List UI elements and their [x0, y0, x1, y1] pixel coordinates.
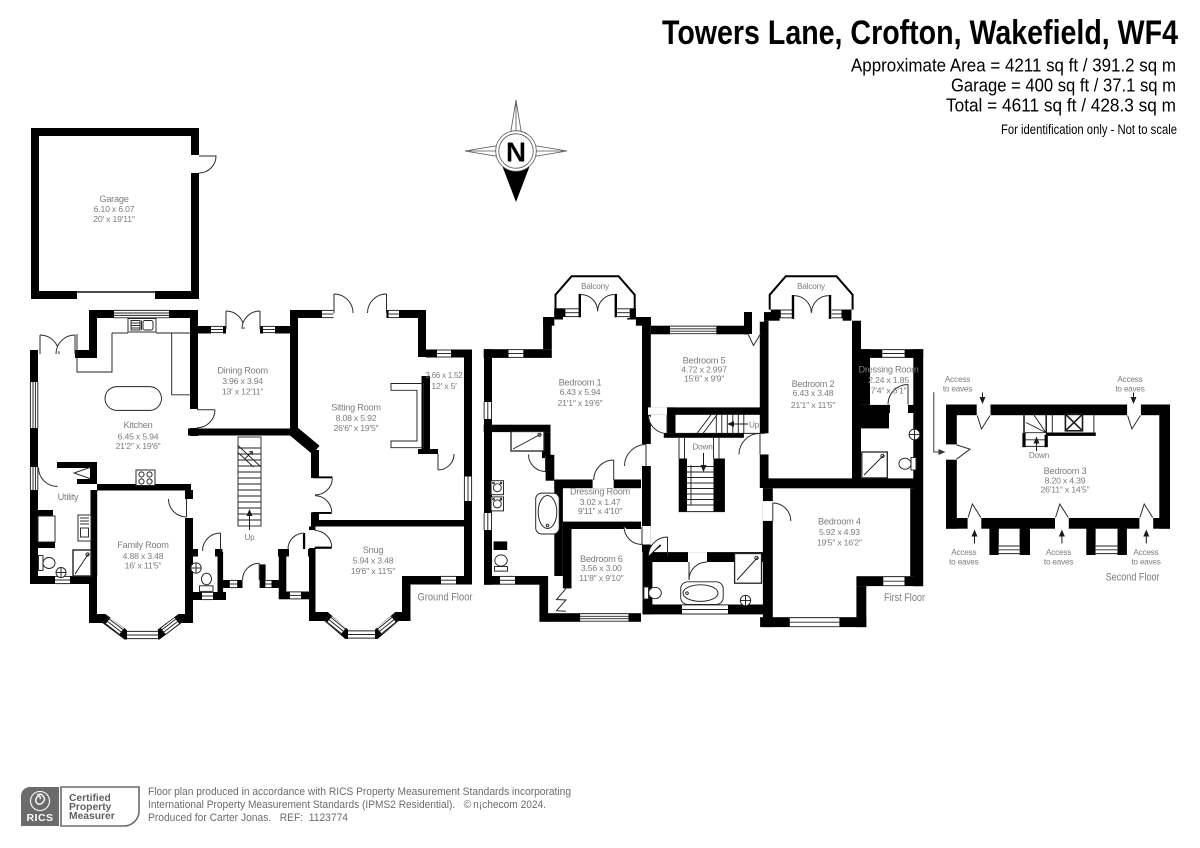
svg-text:21′2″ x 19′6″: 21′2″ x 19′6″	[116, 441, 161, 451]
svg-text:First Floor: First Floor	[884, 592, 925, 604]
svg-text:Dining Room: Dining Room	[217, 366, 268, 376]
svg-text:Sitting Room: Sitting Room	[331, 403, 381, 413]
svg-text:5.92 x 4.93: 5.92 x 4.93	[819, 527, 860, 537]
svg-text:For identification only - Not: For identification only - Not to scale	[1001, 122, 1177, 137]
svg-text:Second Floor: Second Floor	[1106, 572, 1160, 584]
svg-text:7′4″ x 6′1″: 7′4″ x 6′1″	[871, 386, 907, 396]
svg-text:Garage: Garage	[99, 194, 128, 204]
svg-text:Garage = 400 sq ft / 37.1 sq m: Garage = 400 sq ft / 37.1 sq m	[951, 75, 1176, 96]
svg-text:19′5″ x 16′2″: 19′5″ x 16′2″	[817, 538, 862, 548]
svg-text:Bedroom 1: Bedroom 1	[559, 378, 602, 388]
svg-text:to eaves: to eaves	[1131, 558, 1160, 567]
svg-text:8.08 x 5.92: 8.08 x 5.92	[336, 413, 377, 423]
svg-text:26′6″ x 19′5″: 26′6″ x 19′5″	[334, 423, 379, 433]
svg-text:International Property Measure: International Property Measurement Stand…	[148, 799, 546, 811]
svg-text:Dressing Room: Dressing Room	[570, 487, 631, 497]
svg-text:Ground Floor: Ground Floor	[418, 592, 473, 604]
svg-text:Access: Access	[951, 548, 976, 557]
svg-text:5.94 x 3.48: 5.94 x 3.48	[353, 556, 394, 566]
svg-text:Floor plan produced in accorda: Floor plan produced in accordance with R…	[148, 786, 571, 798]
svg-text:Down: Down	[1029, 451, 1050, 460]
svg-text:19′6″ x 11′5″: 19′6″ x 11′5″	[351, 566, 395, 576]
svg-text:to eaves: to eaves	[949, 558, 978, 567]
svg-text:Access: Access	[1046, 548, 1071, 557]
svg-text:to eaves: to eaves	[943, 385, 972, 394]
svg-text:Up: Up	[749, 421, 760, 430]
svg-text:21′1″ x 19′6″: 21′1″ x 19′6″	[558, 398, 603, 408]
svg-text:11′8″ x 9′10″: 11′8″ x 9′10″	[579, 573, 623, 583]
svg-text:6.10 x 6.07: 6.10 x 6.07	[94, 204, 135, 214]
svg-text:Access: Access	[1117, 375, 1142, 384]
svg-text:Towers Lane, Crofton, Wakefiel: Towers Lane, Crofton, Wakefield, WF4	[662, 14, 1178, 52]
svg-text:2.24 x 1.85: 2.24 x 1.85	[868, 375, 909, 385]
svg-text:6.45 x 5.94: 6.45 x 5.94	[118, 432, 159, 442]
svg-text:Access: Access	[1133, 548, 1158, 557]
svg-text:Kitchen: Kitchen	[124, 420, 153, 430]
svg-text:3.66 x 1.52: 3.66 x 1.52	[426, 370, 463, 380]
svg-text:to eaves: to eaves	[1115, 385, 1144, 394]
svg-text:6.43 x 5.94: 6.43 x 5.94	[560, 387, 601, 397]
svg-text:Utility: Utility	[58, 492, 79, 502]
svg-text:Bedroom 3: Bedroom 3	[1044, 466, 1087, 476]
svg-text:Dressing Room: Dressing Room	[858, 365, 919, 375]
svg-text:Access: Access	[945, 375, 970, 384]
svg-text:21′1″ x 11′5″: 21′1″ x 11′5″	[791, 400, 835, 410]
svg-text:Up: Up	[244, 533, 255, 542]
svg-text:26′11″ x 14′5″: 26′11″ x 14′5″	[1041, 485, 1090, 495]
svg-text:3.96 x 3.94: 3.96 x 3.94	[222, 376, 263, 386]
svg-text:Produced for Carter Jonas. R: Produced for Carter Jonas. REF: 1123774	[148, 812, 348, 824]
svg-text:Approximate Area = 4211 sq ft: Approximate Area = 4211 sq ft / 391.2 sq…	[851, 55, 1176, 76]
svg-text:to eaves: to eaves	[1044, 558, 1073, 567]
svg-text:3.56 x 3.00: 3.56 x 3.00	[581, 563, 622, 573]
svg-text:20′ x 19′11″: 20′ x 19′11″	[93, 214, 135, 224]
svg-text:Total = 4611 sq ft / 428.3 sq: Total = 4611 sq ft / 428.3 sq m	[946, 95, 1176, 116]
svg-text:Balcony: Balcony	[797, 282, 826, 291]
svg-text:12′ x 5′: 12′ x 5′	[431, 381, 457, 391]
svg-text:N: N	[506, 137, 526, 168]
svg-text:Balcony: Balcony	[581, 282, 610, 291]
svg-text:9′11″ x 4′10″: 9′11″ x 4′10″	[578, 506, 622, 516]
svg-text:16′ x 11′5″: 16′ x 11′5″	[125, 561, 162, 571]
svg-text:Down: Down	[692, 443, 713, 452]
svg-text:Family Room: Family Room	[117, 540, 169, 550]
svg-text:Bedroom 4: Bedroom 4	[818, 517, 861, 527]
svg-text:Snug: Snug	[363, 545, 384, 555]
svg-text:13′ x 12′11″: 13′ x 12′11″	[222, 387, 264, 397]
svg-text:15′6″ x 9′9″: 15′6″ x 9′9″	[684, 374, 724, 384]
svg-text:6.43 x 3.48: 6.43 x 3.48	[793, 388, 834, 398]
svg-text:Measurer: Measurer	[69, 811, 115, 822]
svg-text:4.88 x 3.48: 4.88 x 3.48	[123, 551, 164, 561]
svg-text:RICS: RICS	[26, 812, 53, 824]
